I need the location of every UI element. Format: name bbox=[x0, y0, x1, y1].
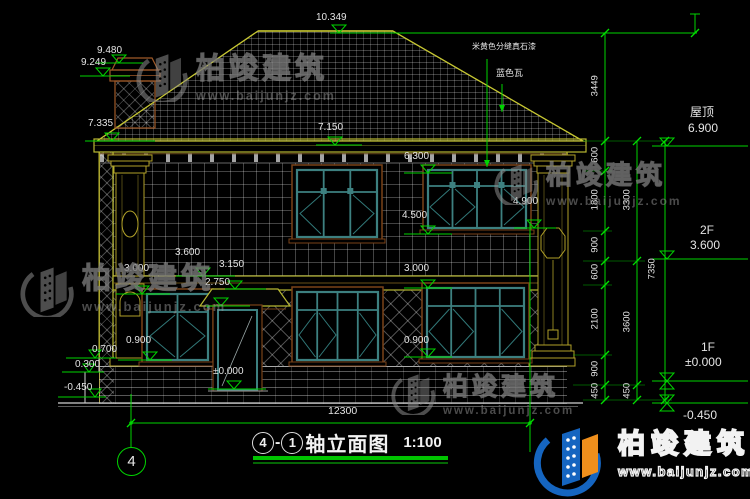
cad-elevation-drawing: 10.349 9.480 9.249 7.335 7.150 6.300 4.5… bbox=[0, 0, 750, 499]
callout-2f-level: 3.600 bbox=[690, 239, 720, 252]
dim-12300: 12300 bbox=[328, 406, 357, 418]
watermark-logo-icon bbox=[20, 255, 76, 323]
watermark-bottom: 柏竣建筑 www.baijunjz.com bbox=[391, 367, 574, 417]
level-step-mid: 0.300 bbox=[75, 359, 100, 370]
level-f2-win-top: 6.300 bbox=[404, 151, 429, 162]
dim-3449: 3449 bbox=[590, 66, 600, 106]
callout-roof-name: 屋顶 bbox=[690, 106, 714, 119]
level-ridge: 10.349 bbox=[316, 12, 347, 23]
level-eave: 7.150 bbox=[318, 122, 343, 133]
window-1f-middle bbox=[289, 287, 386, 366]
title-scale: 1:100 bbox=[403, 434, 441, 451]
dim-450a: 450 bbox=[590, 371, 600, 411]
level-f1-win-top-r: 3.000 bbox=[404, 263, 429, 274]
window-1f-right bbox=[419, 283, 532, 363]
watermark-url: www.baijunjz.com bbox=[546, 194, 682, 208]
watermark-top: 柏竣建筑 www.baijunjz.com bbox=[136, 45, 336, 105]
watermark-logo-icon bbox=[136, 45, 190, 105]
dim-3600: 3600 bbox=[622, 302, 632, 342]
level-chimney-top: 9.480 bbox=[97, 45, 122, 56]
level-chimney-cap: 9.249 bbox=[81, 57, 106, 68]
watermark-url: www.baijunjz.com bbox=[82, 299, 226, 314]
level-f1-floor: ±0.000 bbox=[213, 366, 244, 377]
watermark-url: www.baijunjz.com bbox=[196, 89, 336, 103]
note-wall-finish: 米黄色分缝真石漆 bbox=[472, 43, 536, 52]
company-logo: 柏竣建筑 www.baijunjz.com bbox=[532, 422, 750, 498]
level-f2-win-sill: 4.500 bbox=[402, 210, 427, 221]
note-roof-tile: 蓝色瓦 bbox=[496, 69, 523, 79]
company-logo-icon bbox=[532, 422, 612, 498]
callout-1f-level: ±0.000 bbox=[685, 356, 722, 369]
watermark-url: www.baijunjz.com bbox=[443, 405, 574, 417]
title-dash: - bbox=[275, 434, 280, 452]
level-eave-left: 7.335 bbox=[88, 118, 113, 129]
watermark-right: 柏竣建筑 www.baijunjz.com bbox=[494, 155, 682, 209]
company-logo-brand: 柏竣建筑 bbox=[618, 422, 750, 461]
dim-600b: 600 bbox=[590, 252, 600, 292]
level-step-top: 0.700 bbox=[92, 344, 117, 355]
callout-1f-name: 1F bbox=[701, 341, 715, 354]
callout-2f-name: 2F bbox=[700, 224, 714, 237]
watermark-brand: 柏竣建筑 bbox=[546, 155, 682, 192]
title-name: 轴立面图 bbox=[305, 428, 389, 457]
level-f1-win-sill-l: 0.900 bbox=[126, 335, 151, 346]
title-axis-end-bubble: 1 bbox=[281, 432, 303, 454]
watermark-logo-icon bbox=[494, 155, 540, 209]
callout-ground-level: -0.450 bbox=[683, 409, 717, 422]
title-underline-thin bbox=[253, 462, 448, 464]
watermark-brand: 柏竣建筑 bbox=[196, 45, 336, 87]
drawing-title: 4 - 1 轴立面图 1:100 bbox=[252, 428, 442, 457]
title-underline-thick bbox=[253, 456, 448, 460]
title-axis-start-bubble: 4 bbox=[252, 432, 274, 454]
dim-450b: 450 bbox=[622, 371, 632, 411]
dim-7350: 7350 bbox=[647, 249, 657, 289]
company-logo-url: www.baijunjz.com bbox=[618, 464, 750, 479]
callout-roof-level: 6.900 bbox=[688, 122, 718, 135]
axis-bubble-4: 4 bbox=[117, 447, 146, 476]
level-f1-win-sill-r: 0.900 bbox=[404, 335, 429, 346]
window-2f-left bbox=[289, 165, 385, 243]
watermark-brand: 柏竣建筑 bbox=[443, 367, 574, 403]
dim-2100: 2100 bbox=[590, 299, 600, 339]
level-ground-left: -0.450 bbox=[64, 382, 92, 393]
watermark-left: 柏竣建筑 www.baijunjz.com bbox=[20, 255, 226, 323]
watermark-logo-icon bbox=[391, 367, 437, 417]
watermark-brand: 柏竣建筑 bbox=[82, 255, 226, 297]
